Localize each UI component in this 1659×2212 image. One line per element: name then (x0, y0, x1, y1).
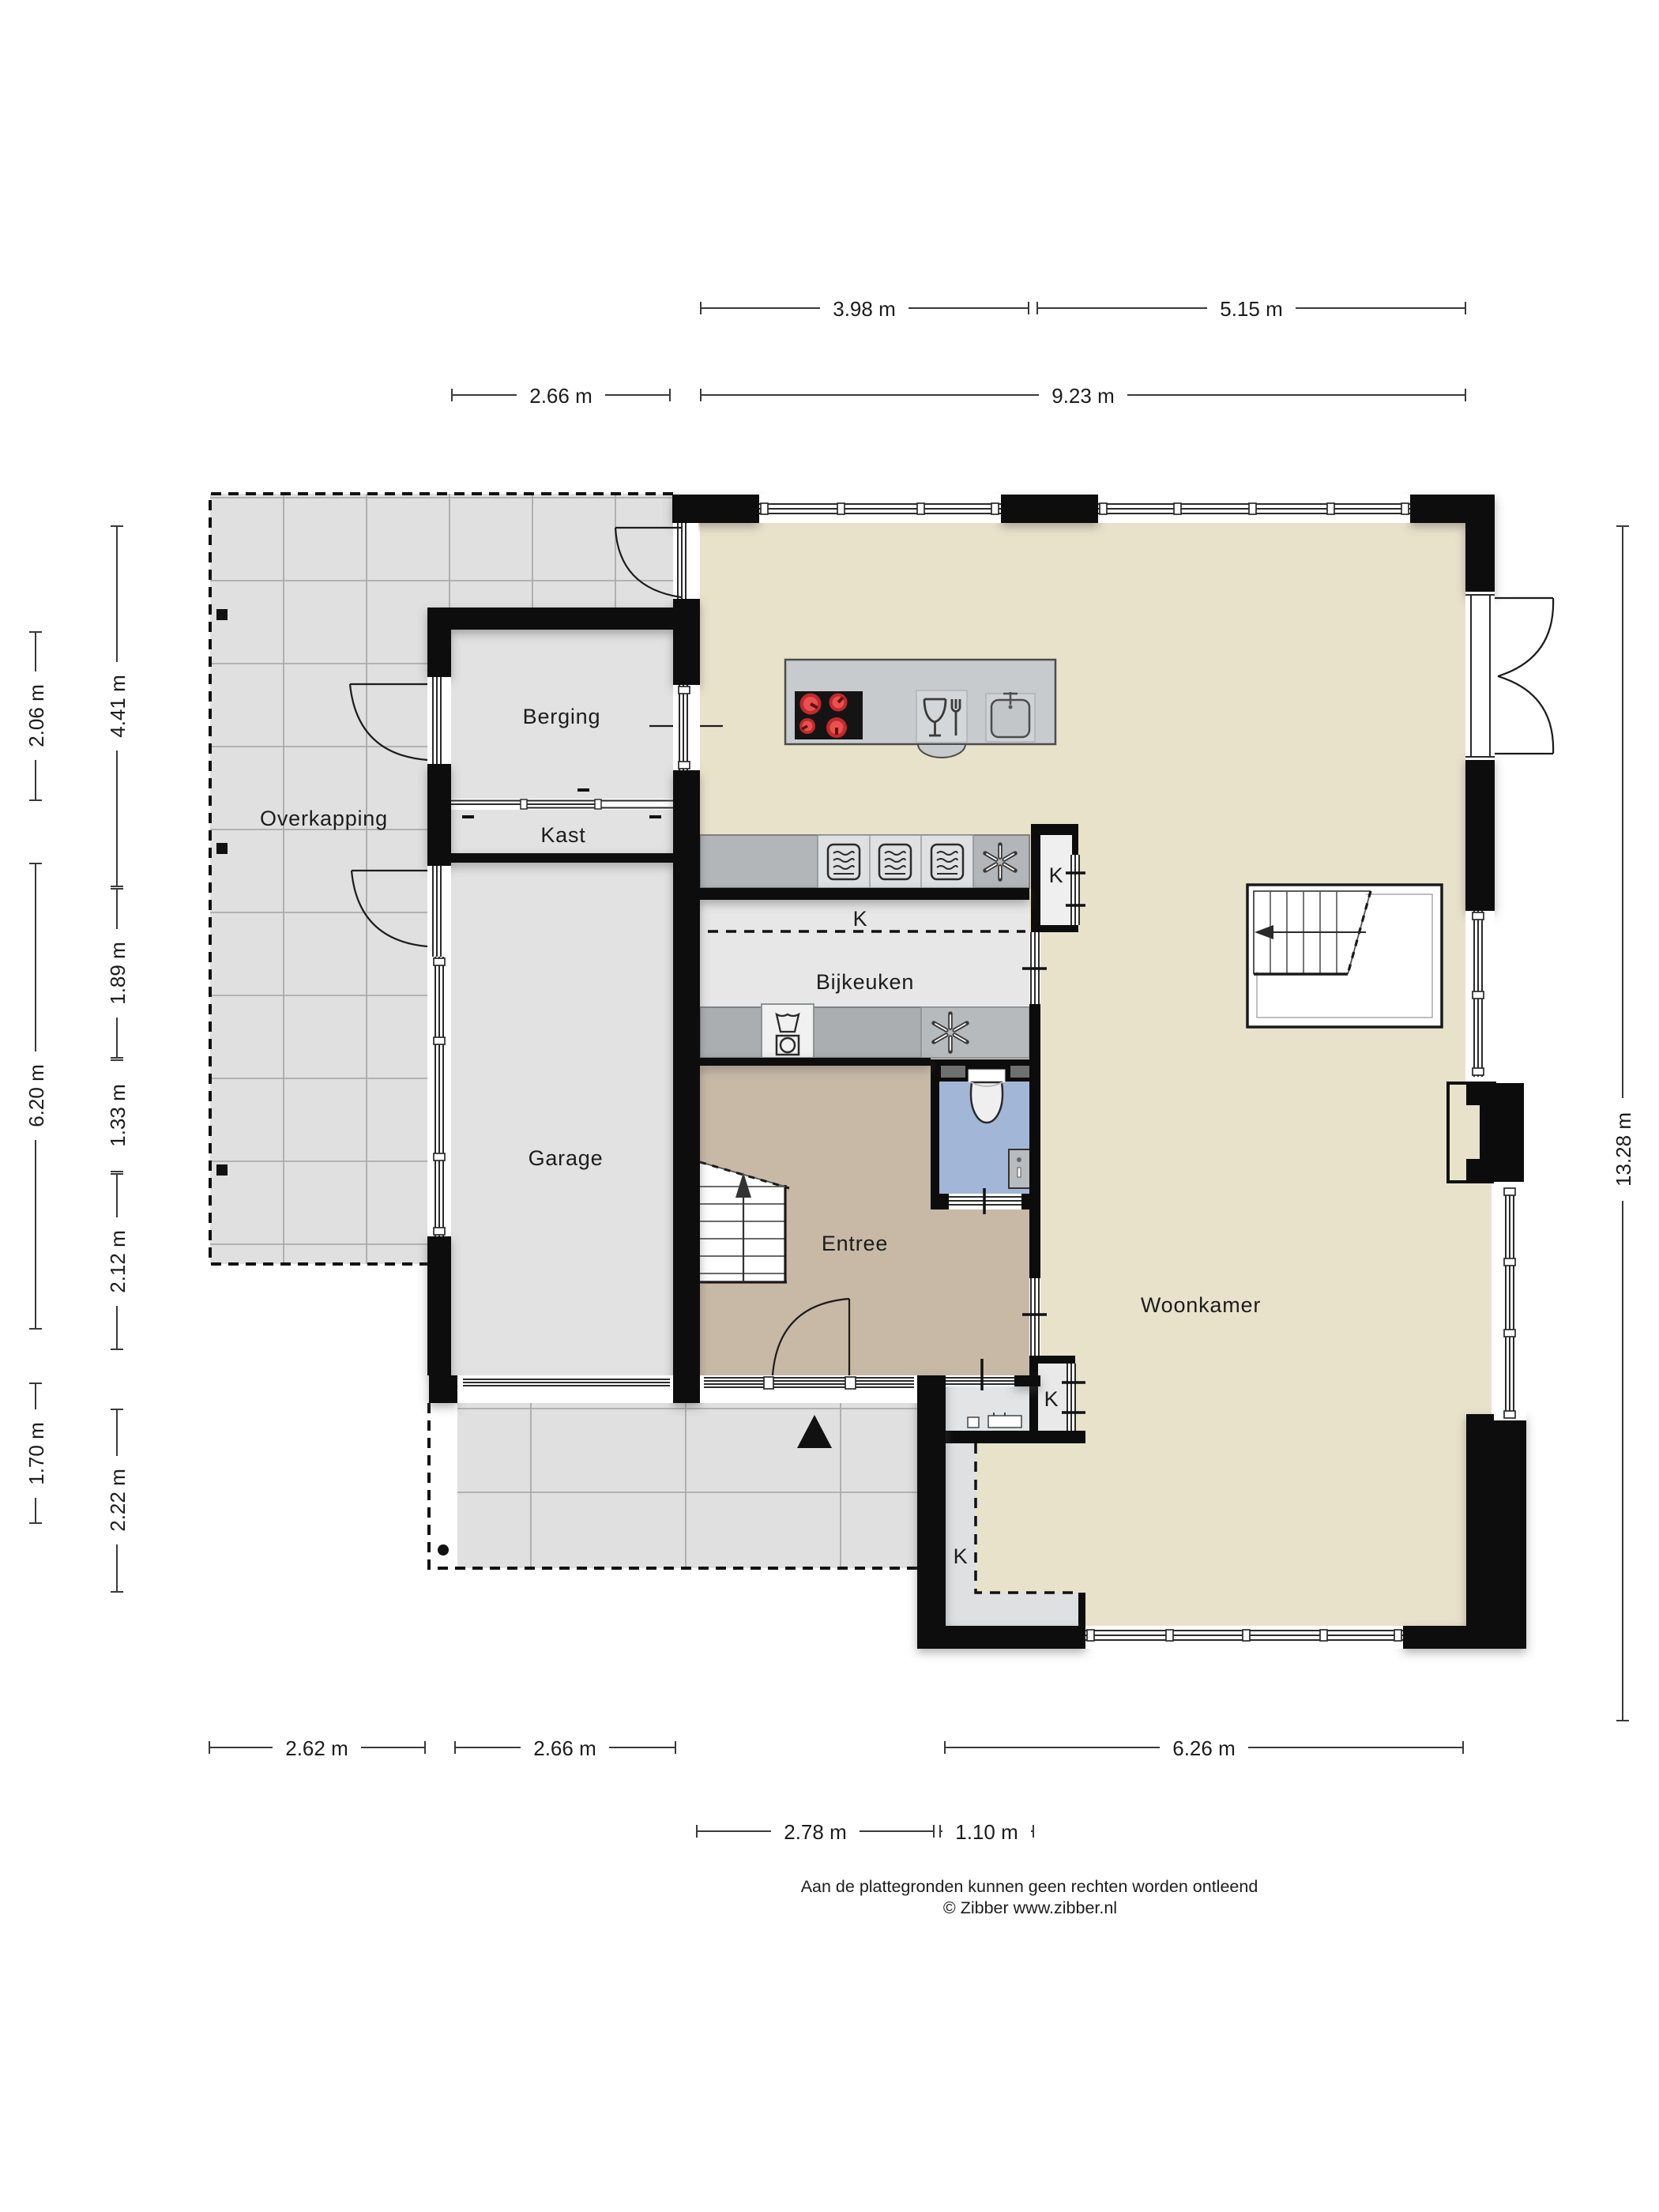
svg-text:1.70 m: 1.70 m (24, 1422, 48, 1485)
svg-text:6.26 m: 6.26 m (1172, 1736, 1236, 1760)
svg-text:2.12 m: 2.12 m (106, 1230, 130, 1293)
svg-text:2.22 m: 2.22 m (106, 1469, 130, 1532)
svg-text:K: K (954, 1544, 969, 1568)
svg-text:K: K (1044, 1387, 1059, 1411)
svg-text:9.23 m: 9.23 m (1051, 384, 1115, 408)
svg-text:1.10 m: 1.10 m (955, 1820, 1018, 1844)
svg-text:Kast: Kast (540, 823, 585, 847)
svg-text:K: K (1049, 863, 1064, 887)
svg-text:Entree: Entree (822, 1232, 888, 1255)
svg-text:Garage: Garage (529, 1146, 604, 1170)
svg-text:3.98 m: 3.98 m (833, 297, 896, 321)
svg-text:2.62 m: 2.62 m (285, 1736, 348, 1760)
svg-text:1.89 m: 1.89 m (106, 942, 130, 1005)
svg-text:Aan de plattegronden kunnen ge: Aan de plattegronden kunnen geen rechten… (801, 1877, 1258, 1896)
svg-text:2.78 m: 2.78 m (784, 1820, 847, 1844)
svg-text:13.28 m: 13.28 m (1612, 1112, 1635, 1187)
svg-text:2.66 m: 2.66 m (529, 384, 592, 408)
svg-text:2.66 m: 2.66 m (533, 1736, 596, 1760)
svg-text:6.20 m: 6.20 m (24, 1064, 48, 1127)
svg-text:© Zibber www.zibber.nl: © Zibber www.zibber.nl (943, 1898, 1117, 1917)
svg-text:1.33 m: 1.33 m (106, 1084, 130, 1147)
svg-text:2.06 m: 2.06 m (24, 684, 48, 747)
svg-text:Berging: Berging (523, 705, 601, 728)
svg-text:Woonkamer: Woonkamer (1141, 1293, 1261, 1317)
svg-text:Bijkeuken: Bijkeuken (816, 970, 914, 994)
svg-text:5.15 m: 5.15 m (1220, 297, 1283, 321)
svg-text:Overkapping: Overkapping (260, 807, 388, 830)
svg-text:K: K (853, 907, 868, 931)
svg-text:4.41 m: 4.41 m (106, 675, 130, 738)
